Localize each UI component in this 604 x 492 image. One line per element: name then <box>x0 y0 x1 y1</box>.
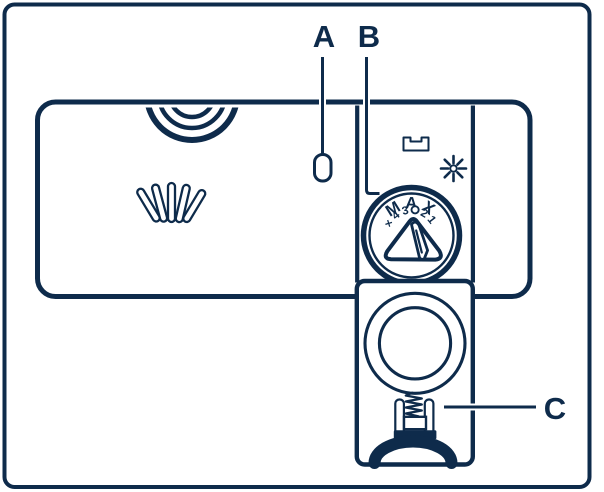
dose-dial: MAX × 4 3 2 1 <box>364 188 460 284</box>
dispenser-cap <box>365 293 465 393</box>
latch-block <box>404 417 426 429</box>
latch-rail-left <box>395 400 404 436</box>
callout-b-label: B <box>358 19 380 54</box>
callout-a-label: A <box>313 19 335 54</box>
dial-scale-zero <box>412 206 419 213</box>
dispenser-diagram-page: MAX × 4 3 2 1 A <box>0 0 604 492</box>
callout-c-label: C <box>544 391 566 426</box>
spray-line <box>168 183 175 222</box>
callout-a-marker <box>315 155 332 182</box>
dispenser-diagram: MAX × 4 3 2 1 A <box>0 0 604 492</box>
